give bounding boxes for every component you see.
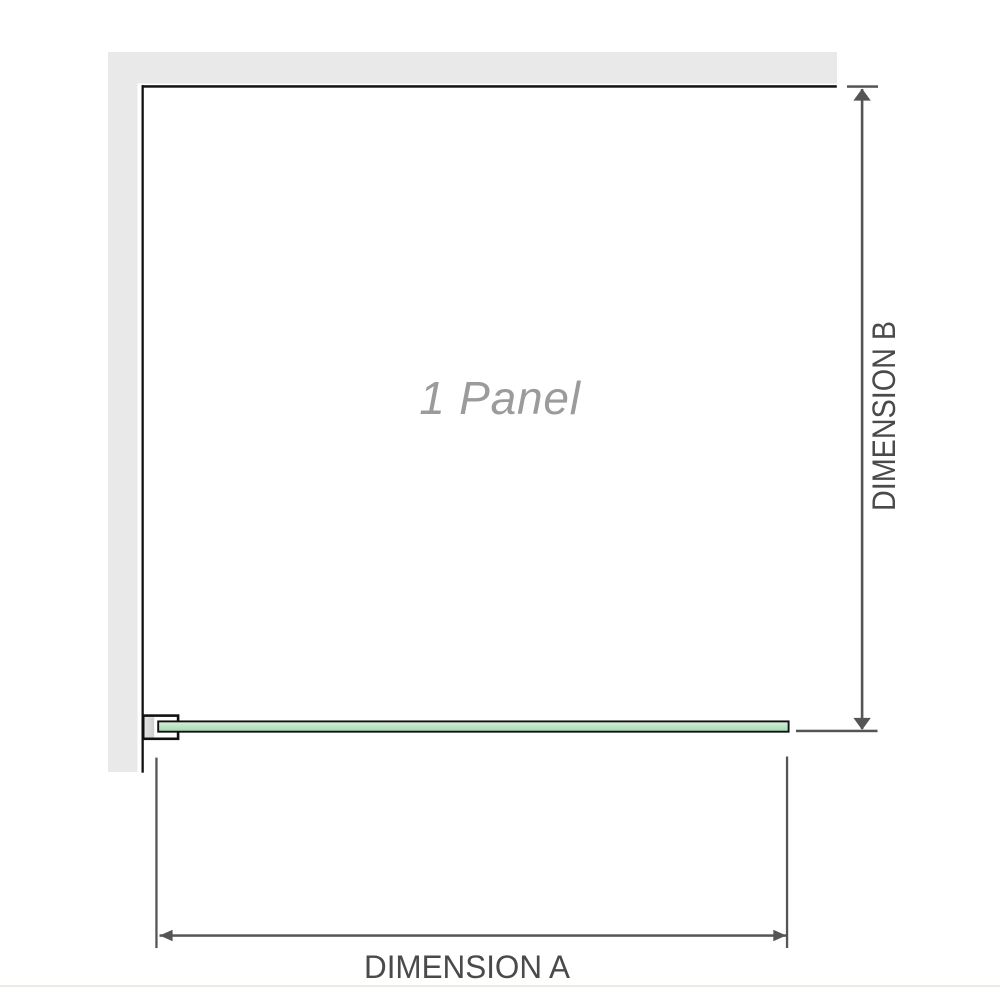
svg-text:DIMENSION A: DIMENSION A xyxy=(364,949,571,985)
svg-text:DIMENSION B: DIMENSION B xyxy=(866,321,902,511)
svg-text:1 Panel: 1 Panel xyxy=(419,372,582,424)
